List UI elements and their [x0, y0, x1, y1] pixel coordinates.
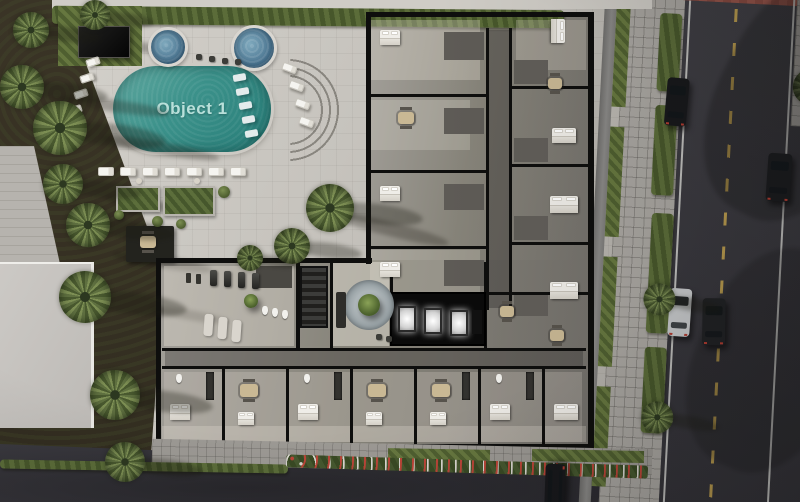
kitchen-counter: [462, 372, 470, 400]
potted-plant: [244, 294, 258, 308]
pillow: [560, 21, 564, 30]
dining-table: [548, 78, 562, 89]
palm-tree: [105, 442, 145, 482]
room-floor: [444, 260, 484, 286]
dining-table: [432, 384, 450, 397]
kitchen-counter: [526, 372, 534, 400]
shrub: [114, 210, 124, 220]
bed: [550, 196, 578, 213]
dumbbell-rack: [196, 274, 201, 284]
potted-plant: [358, 294, 380, 316]
interior-wall: [478, 369, 481, 444]
dumbbell-rack: [186, 273, 191, 283]
pillow: [391, 263, 398, 267]
room-floor: [514, 216, 548, 240]
gym-machine: [224, 271, 231, 287]
pillow: [309, 405, 316, 409]
pillow: [552, 283, 562, 287]
dining-table: [398, 112, 414, 124]
interior-wall: [162, 366, 586, 369]
blanket: [170, 413, 190, 420]
pillow: [566, 197, 576, 201]
blanket: [552, 136, 576, 143]
interior-wall: [366, 12, 371, 264]
palm-tree: [59, 271, 111, 323]
car-windshield: [548, 469, 553, 502]
sun-lounger: [230, 167, 246, 176]
pool-chair: [209, 56, 215, 62]
palm-tree: [90, 370, 140, 420]
sun-lounger: [186, 167, 202, 176]
bed: [554, 404, 578, 420]
blanket: [554, 413, 578, 420]
kitchen-counter: [206, 372, 214, 400]
pillow: [554, 129, 563, 133]
sun-lounger: [142, 167, 158, 176]
pillow: [382, 263, 389, 267]
dining-table: [240, 384, 258, 397]
sun-lounger: [98, 167, 114, 176]
spa-pool: [148, 27, 188, 67]
blanket: [366, 419, 382, 425]
exercise-mat: [203, 314, 214, 337]
interior-wall: [156, 258, 161, 450]
palm-tree: [43, 164, 83, 204]
pillow: [367, 413, 373, 416]
palm-tree: [237, 245, 263, 271]
blanket: [238, 419, 254, 425]
interior-wall: [369, 94, 486, 97]
interior-wall: [369, 170, 486, 173]
palm-tree: [306, 184, 354, 232]
blanket: [550, 205, 578, 213]
blanket: [430, 419, 446, 425]
in-pool-lounger: [235, 87, 249, 96]
palm-tree: [33, 101, 87, 155]
pillow: [382, 187, 389, 191]
room-floor: [444, 108, 484, 134]
gym-machine: [252, 273, 259, 289]
reception-desk: [336, 292, 346, 328]
interior-wall: [330, 262, 333, 348]
bathroom-fixture: [262, 306, 268, 315]
pillow: [300, 405, 307, 409]
bed: [380, 262, 400, 277]
blanket: [380, 194, 400, 201]
exercise-mat: [231, 320, 242, 343]
interior-wall: [542, 369, 545, 444]
room-floor: [514, 138, 548, 162]
planter-box: [163, 186, 215, 216]
pool-chair: [196, 54, 202, 60]
interior-wall: [512, 242, 588, 245]
in-pool-lounger: [241, 115, 255, 124]
kitchen-counter: [334, 372, 342, 400]
interior-wall: [286, 369, 289, 444]
elevator-cab: [450, 310, 468, 336]
shrub: [176, 219, 186, 229]
dining-table: [368, 384, 386, 397]
blanket: [380, 38, 400, 45]
bed: [366, 412, 382, 425]
blanket: [380, 270, 400, 277]
palm-tree: [13, 12, 49, 48]
in-pool-lounger: [238, 101, 252, 110]
pillow: [556, 405, 565, 409]
interior-wall: [588, 12, 594, 448]
bed: [552, 128, 576, 143]
bed: [551, 19, 565, 43]
interior-wall: [222, 369, 225, 444]
bed: [238, 412, 254, 425]
interior-wall: [350, 369, 353, 444]
palm-tree: [0, 65, 44, 109]
car-rear-window: [558, 471, 562, 502]
palm-tree: [66, 203, 110, 247]
pool-chair: [376, 334, 382, 340]
bathroom-fixture: [176, 374, 182, 383]
exercise-mat: [217, 317, 228, 340]
bathroom-fixture: [272, 308, 278, 317]
bathroom-fixture: [496, 374, 502, 383]
bed: [380, 30, 400, 45]
in-pool-lounger: [244, 129, 258, 138]
bed: [430, 412, 446, 425]
pillow: [439, 413, 445, 416]
pillow: [492, 405, 499, 409]
room-floor: [444, 32, 484, 60]
bed: [550, 282, 578, 299]
interior-wall: [484, 262, 487, 348]
pool-chair: [222, 58, 228, 64]
pillow: [567, 405, 576, 409]
pillow: [391, 187, 398, 191]
gym-machine: [238, 272, 245, 288]
interior-wall: [414, 369, 417, 444]
lawn-strip: [532, 449, 644, 463]
sun-lounger: [120, 167, 136, 176]
room-floor: [256, 266, 292, 288]
aerial-site-render: Object 1: [0, 0, 800, 502]
sun-lounger: [164, 167, 180, 176]
pool-chair: [386, 336, 392, 342]
bed: [298, 404, 318, 420]
interior-wall: [509, 28, 512, 310]
pillow: [560, 32, 564, 41]
pool-chair: [235, 59, 241, 65]
car: [544, 464, 566, 502]
interior-wall: [369, 246, 486, 249]
pillow: [431, 413, 437, 416]
sun-lounger: [79, 72, 95, 84]
in-pool-lounger: [232, 73, 246, 82]
room-floor: [444, 184, 484, 210]
pillow: [375, 413, 381, 416]
pillow: [566, 283, 576, 287]
pillow: [382, 31, 389, 35]
room-floor: [514, 292, 548, 316]
scene-items-layer: [0, 0, 800, 502]
sun-lounger: [208, 167, 224, 176]
palm-tree: [80, 0, 110, 30]
pillow: [501, 405, 508, 409]
blanket: [298, 413, 318, 420]
gym-machine: [210, 270, 217, 286]
side-table: [194, 178, 200, 184]
pillow: [247, 413, 253, 416]
pillow: [552, 197, 562, 201]
interior-wall: [162, 348, 586, 351]
pillow: [239, 413, 245, 416]
room-floor: [489, 30, 509, 308]
dining-table: [550, 330, 564, 341]
blanket: [550, 291, 578, 299]
blanket: [490, 413, 510, 420]
dining-table: [500, 306, 514, 317]
pillow: [391, 31, 398, 35]
staircase: [300, 266, 328, 328]
pillow: [565, 129, 574, 133]
room-floor: [472, 310, 482, 334]
shrub: [218, 186, 230, 198]
interior-wall: [366, 12, 594, 17]
bed: [380, 186, 400, 201]
room-floor: [165, 351, 583, 366]
bathroom-fixture: [304, 374, 310, 383]
blanket: [551, 19, 557, 43]
room-floor: [514, 60, 548, 84]
bed: [490, 404, 510, 420]
elevator-cab: [424, 308, 442, 334]
interior-wall: [512, 164, 588, 167]
bathroom-fixture: [282, 310, 288, 319]
side-table: [136, 178, 142, 184]
elevator-cab: [398, 306, 416, 332]
